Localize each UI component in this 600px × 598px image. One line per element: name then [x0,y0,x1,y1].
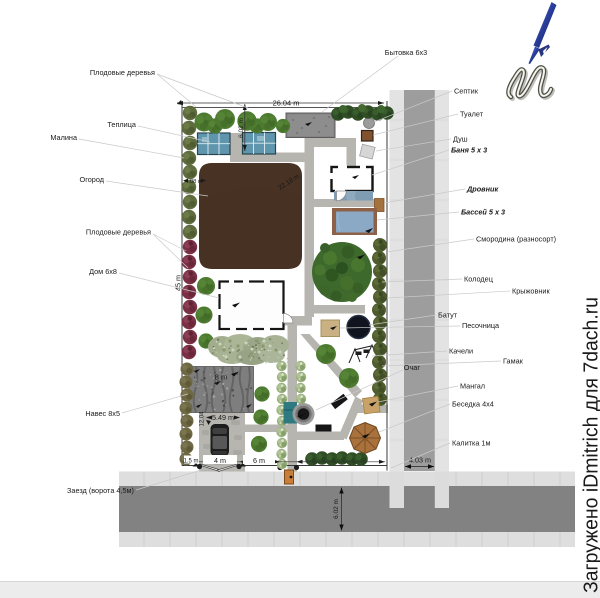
svg-text:5.49 m: 5.49 m [212,413,234,422]
svg-text:4.03 m: 4.03 m [409,456,431,465]
svg-text:Дом 6х8: Дом 6х8 [89,267,117,276]
svg-text:Душ: Душ [453,135,468,144]
svg-text:Туалет: Туалет [460,110,484,119]
svg-text:6.02 m: 6.02 m [333,499,340,519]
svg-text:Бассей 5 х 3: Бассей 5 х 3 [461,208,505,217]
svg-text:Плодовые деревья: Плодовые деревья [86,228,151,237]
svg-text:Гамак: Гамак [503,357,524,366]
svg-text:Бытовка 6х3: Бытовка 6х3 [385,48,427,57]
svg-text:Очаг: Очаг [404,363,421,372]
svg-text:Смородина (разносорт): Смородина (разносорт) [476,235,556,244]
svg-text:26.04 m: 26.04 m [273,99,300,108]
svg-text:Навес 8х5: Навес 8х5 [85,409,120,418]
svg-text:Дровник: Дровник [466,185,498,194]
svg-text:Калитка 1м: Калитка 1м [452,439,491,448]
svg-text:Плодовые деревья: Плодовые деревья [90,68,155,77]
svg-text:Беседка 4х4: Беседка 4х4 [452,400,494,409]
svg-text:Крыжовник: Крыжовник [512,287,550,296]
svg-text:Песочница: Песочница [462,321,500,330]
svg-text:Теплица: Теплица [107,120,137,129]
svg-text:Батут: Батут [438,311,458,320]
svg-text:4 m: 4 m [214,456,226,465]
svg-text:Колодец: Колодец [464,275,494,284]
svg-text:1.5 m: 1.5 m [183,459,198,465]
svg-text:Септик: Септик [454,87,479,96]
svg-text:Заезд (ворота 4,5м): Заезд (ворота 4,5м) [67,486,134,495]
svg-text:12.04: 12.04 [200,411,206,427]
svg-text:Огород: Огород [80,175,105,184]
svg-text:Малина: Малина [50,133,78,142]
svg-text:Баня 5 х 3: Баня 5 х 3 [451,146,487,155]
svg-text:8 m: 8 m [215,373,228,382]
svg-text:Мангал: Мангал [460,382,485,391]
svg-text:6.02 m: 6.02 m [238,118,245,138]
svg-text:6 m: 6 m [253,456,265,465]
svg-text:Загружено iDmitrich для 7dach.: Загружено iDmitrich для 7dach.ru [581,297,600,593]
svg-text:Качели: Качели [449,347,473,356]
